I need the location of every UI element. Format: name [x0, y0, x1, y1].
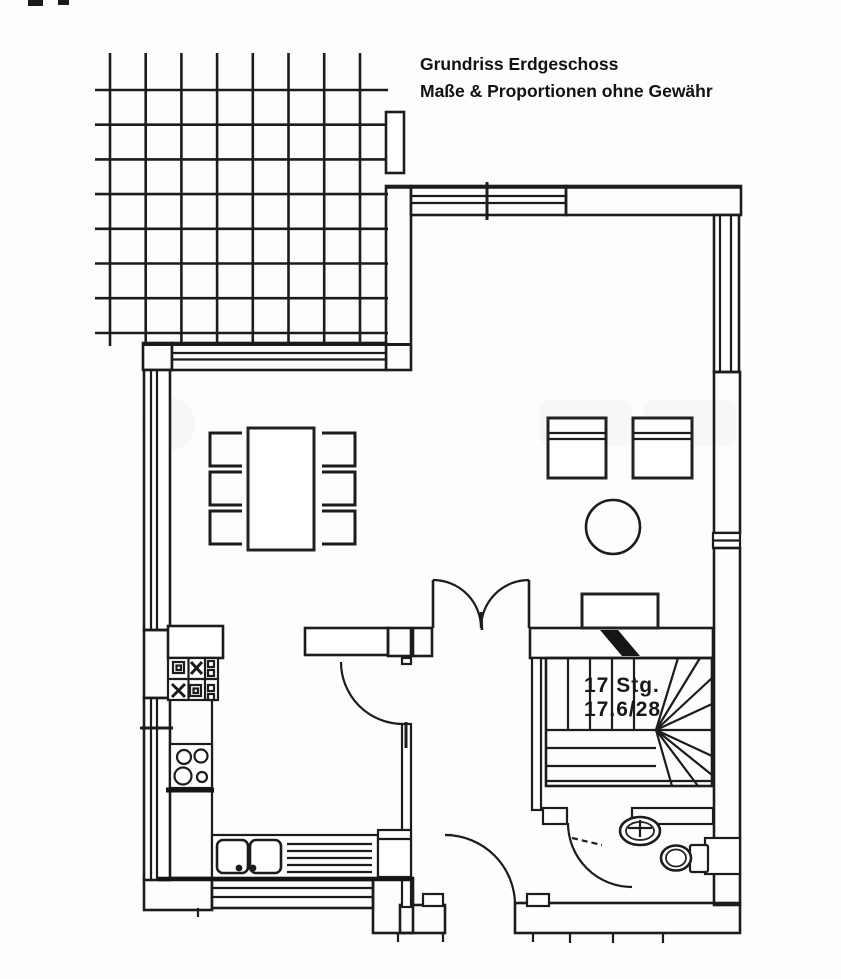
partition-wall: [305, 628, 388, 655]
floor-plan-canvas: 17 Stg. 17.6/28: [0, 0, 841, 979]
kitchen-appliance-right: [378, 830, 411, 877]
wall-stub-top: [386, 112, 404, 173]
wall-hall-kitchen-stub: [402, 658, 411, 664]
wall-recess: [705, 838, 740, 874]
wall-terrace-window-band: [172, 343, 386, 370]
entrance-step-right: [527, 894, 549, 906]
armchair-left: [548, 418, 606, 478]
stairs-dimensions-label: 17.6/28: [584, 698, 661, 721]
dining-table: [248, 428, 314, 550]
wall-bottom-window: [212, 880, 373, 908]
plan-disclaimer: Maße & Proportionen ohne Gewähr: [420, 81, 713, 101]
bath-door-frame: [543, 808, 567, 824]
toilet-tank: [690, 845, 708, 872]
sideboard: [582, 594, 658, 628]
entrance-step-left: [423, 894, 443, 906]
kitchen-counter-block: [168, 626, 223, 658]
wall-hall-stairs: [532, 658, 541, 810]
stairs-step-count-label: 17 Stg.: [584, 674, 660, 697]
plan-title: Grundriss Erdgeschoss: [420, 54, 619, 74]
wall-right-window: [714, 215, 739, 372]
floor-plan-page: 17 Stg. 17.6/28: [0, 0, 841, 979]
armchair-right: [633, 418, 692, 478]
